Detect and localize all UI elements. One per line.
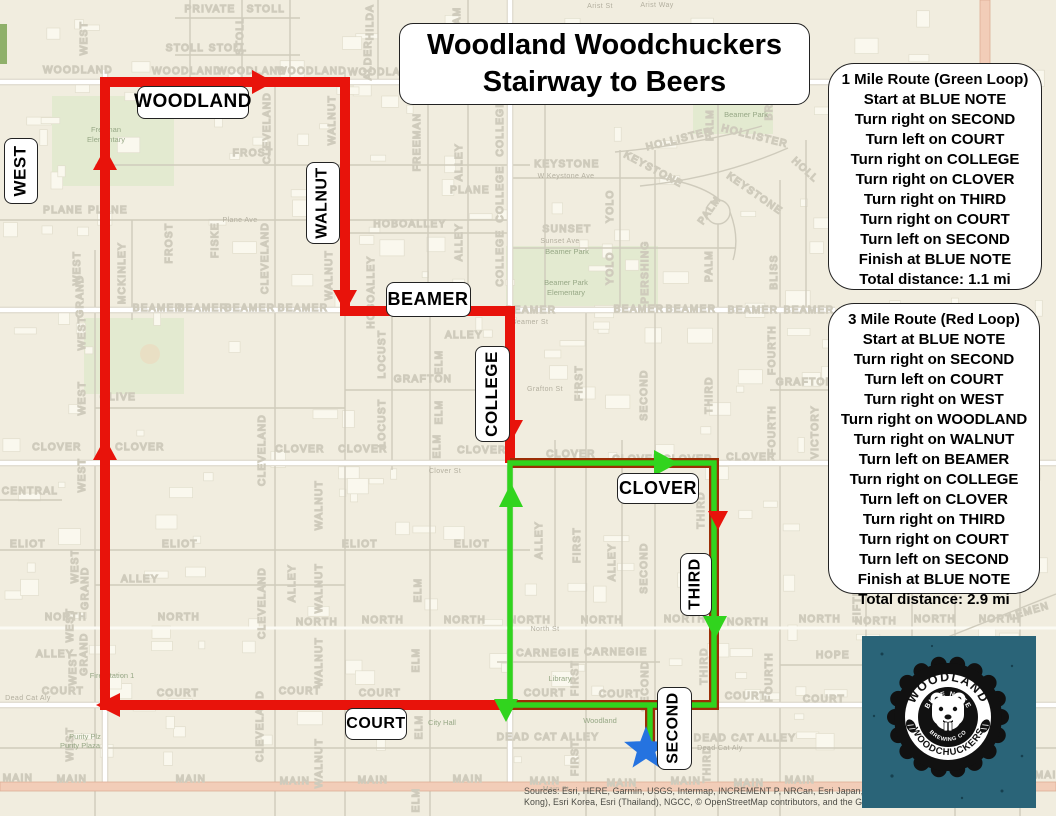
street-name-label: WOODLAND [152, 66, 222, 77]
road-name-label: North St [531, 626, 560, 633]
street-name-label: HOLL [789, 155, 820, 184]
street-name-label: MAIN [1035, 770, 1056, 781]
street-name-label: CLOVER [115, 442, 165, 453]
street-name-label: HOPE [816, 650, 850, 661]
street-name-label: BEAMER [133, 303, 184, 314]
route-total-distance: Total distance: 2.9 mi [829, 590, 1039, 610]
map-poster: PRIVATESTOLLSTOLLSTOLLSTOLLWILLIAMHILDAA… [0, 0, 1056, 816]
route-panel-title: 3 Mile Route (Red Loop) [829, 310, 1039, 330]
street-name-label: ELM [411, 648, 422, 673]
street-name-label: ELM [434, 400, 445, 425]
street-name-label: BEAMER [614, 304, 665, 315]
road-name-label: Grafton St [527, 386, 563, 393]
street-name-label: BLISS [769, 254, 780, 289]
route-step: Turn right on THIRD [829, 190, 1041, 210]
street-name-label: COURT [803, 694, 845, 705]
route-step: Turn right on COLLEGE [829, 470, 1039, 490]
street-name-label: NORTH [664, 614, 706, 625]
route-panel-title: 1 Mile Route (Green Loop) [829, 70, 1041, 90]
route-step: Turn right on WEST [829, 390, 1039, 410]
boxed-street-label-beamer: BEAMER [386, 282, 471, 317]
street-name-label: LOCUST [377, 330, 388, 379]
place-name-label: Woodland [583, 716, 617, 725]
route-step: Turn right on COURT [829, 210, 1041, 230]
street-name-label: COURT [725, 691, 767, 702]
route-step: Turn left on SECOND [829, 230, 1041, 250]
route-step: Turn right on THIRD [829, 510, 1039, 530]
street-name-label: DEAD CAT ALLEY [497, 732, 600, 743]
street-name-label: FOURTH [767, 405, 778, 455]
street-name-label: NORTH [296, 617, 338, 628]
route-step: Finish at BLUE NOTE [829, 250, 1041, 270]
road-name-label: Arist St [587, 3, 613, 10]
street-name-label: CARNEGIE [516, 648, 579, 659]
road-name-label: Clover St [429, 468, 461, 475]
route-panel-red: 3 Mile Route (Red Loop)Start at BLUE NOT… [828, 303, 1040, 594]
route-total-distance: Total distance: 1.1 mi [829, 270, 1041, 290]
street-name-label: NORTH [727, 617, 769, 628]
route-step: Start at BLUE NOTE [829, 90, 1041, 110]
street-name-label: SUNSET [543, 224, 592, 235]
street-name-label: ELIOT [162, 539, 198, 550]
street-name-label: CLOVER [726, 452, 776, 463]
street-name-label: ALLEY [287, 564, 298, 602]
boxed-street-label-second: SECOND [657, 687, 692, 770]
boxed-street-label-woodland: WOODLAND [137, 86, 249, 119]
street-name-label: ELIOT [10, 539, 46, 550]
title-box: Woodland Woodchuckers Stairway to Beers [399, 23, 810, 105]
street-name-label: THIRD [699, 647, 710, 685]
street-name-label: HOBOALLEY [373, 219, 446, 230]
place-name-label: Purity Plz [69, 732, 101, 741]
street-name-label: MCKINLEY [117, 242, 128, 304]
street-name-label: ALLEY [454, 143, 465, 181]
boxed-street-label-clover: CLOVER [617, 473, 699, 504]
street-name-label: YOLO [605, 189, 616, 222]
route-step: Turn right on SECOND [829, 350, 1039, 370]
route-step: Turn left on CLOVER [829, 490, 1039, 510]
street-name-label: PRIVATE [184, 4, 235, 15]
street-name-label: PALM [704, 250, 715, 282]
road-name-label: Sunset Ave [540, 238, 579, 245]
street-name-label: ALLEY [121, 574, 159, 585]
street-name-label: COURT [157, 688, 199, 699]
street-name-label: CARNEGIE [584, 647, 647, 658]
boxed-street-label-third: THIRD [680, 553, 712, 616]
street-name-label: NORTH [799, 614, 841, 625]
street-name-label: PLANE [43, 205, 83, 216]
street-name-label: CLOVER [32, 442, 82, 453]
street-name-label: STOLL [247, 4, 286, 15]
street-name-label: COLLEGE [495, 165, 506, 222]
place-name-label: Elementary [547, 288, 585, 297]
street-name-label: PLANE [450, 185, 490, 196]
street-name-label: MAIN [280, 776, 311, 787]
street-name-label: THIRD [704, 376, 715, 414]
street-name-label: ELIOT [454, 539, 490, 550]
street-name-label: FIRST [570, 660, 581, 696]
route-step: Turn right on CLOVER [829, 170, 1041, 190]
street-name-label: ALLEY [36, 649, 74, 660]
place-name-label: Beamer Park [724, 110, 768, 119]
woodchuckers-logo: WOODLAND WOODCHUCKERS BLUE NOTE BREWING … [862, 636, 1036, 808]
street-name-label: NORTH [158, 612, 200, 623]
street-name-label: FREEMAN [412, 113, 423, 172]
street-name-label: CLEVELAND [257, 567, 268, 639]
street-name-label: ELM [411, 788, 422, 813]
route-step: Turn left on BEAMER [829, 450, 1039, 470]
road-name-label: Dead Cat Aly [5, 695, 51, 702]
title-line-2: Stairway to Beers [400, 64, 809, 101]
green-arrow-up-college [499, 483, 523, 507]
route-step: Turn right on COLLEGE [829, 150, 1041, 170]
street-name-label: MAIN [3, 773, 34, 784]
street-name-label: CLOVER [457, 445, 507, 456]
street-name-label: COLLEGE [495, 229, 506, 286]
street-name-label: DEAD CAT ALLEY [694, 733, 797, 744]
street-name-label: WALNUT [314, 738, 325, 788]
route-step: Turn left on COURT [829, 130, 1041, 150]
street-name-label: BEAMER [225, 303, 276, 314]
place-name-label: City Hall [428, 718, 456, 727]
street-name-label: LOCUST [377, 399, 388, 448]
street-name-label: KEYSTONE [724, 171, 784, 218]
street-name-label: COLLEGE [495, 99, 506, 156]
route-arrows [93, 70, 728, 722]
street-name-label: NORTH [914, 614, 956, 625]
street-name-label: WALNUT [314, 637, 325, 687]
route-step: Turn left on SECOND [829, 550, 1039, 570]
route-step: Finish at BLUE NOTE [829, 570, 1039, 590]
street-name-label: GRAND [79, 632, 90, 675]
place-name-label: Fire Station 1 [90, 671, 135, 680]
street-name-label: NORTH [444, 615, 486, 626]
street-name-label: GRAND [80, 566, 91, 609]
street-name-label: ELM [413, 578, 424, 603]
street-name-label: PALM [705, 109, 716, 141]
street-name-label: ELM [432, 434, 443, 459]
boxed-street-label-west: WEST [4, 138, 38, 204]
place-name-label: Purity Plaza [60, 741, 101, 750]
street-name-label: SECOND [639, 369, 650, 420]
street-name-label: CENTRAL [2, 486, 58, 497]
street-name-label: STOLL [166, 43, 205, 54]
place-name-label: Beamer Park [545, 247, 589, 256]
street-name-label: CLOVER [338, 444, 388, 455]
street-name-label: SECOND [639, 542, 650, 593]
street-name-label: BEAMER [178, 303, 229, 314]
place-name-label: Library [549, 674, 572, 683]
street-name-label: WOODLAND [43, 65, 113, 76]
street-name-label: FROST [164, 223, 175, 264]
street-name-label: WEST [77, 458, 88, 493]
boxed-street-label-college: COLLEGE [475, 346, 510, 442]
route-step: Turn right on COURT [829, 530, 1039, 550]
street-name-label: PERSHING [640, 240, 651, 303]
street-name-label: ELM [434, 350, 445, 375]
route-step: Turn right on WALNUT [829, 430, 1039, 450]
street-name-label: CLEVELAND [262, 92, 273, 164]
street-name-label: GRAFTON [394, 374, 453, 385]
title-line-1: Woodland Woodchuckers [400, 27, 809, 64]
route-step: Start at BLUE NOTE [829, 330, 1039, 350]
street-name-label: ALLEY [607, 543, 618, 581]
street-name-label: WOODLAND [277, 66, 347, 77]
street-name-label: FIRST [574, 365, 585, 401]
street-name-label: WEST [77, 316, 88, 351]
red-arrow-up-west-lower [93, 438, 117, 460]
street-name-label: WEST [79, 21, 90, 56]
street-name-label: GRAFTON [776, 377, 835, 388]
street-name-label: KEYSTONE [534, 159, 599, 170]
street-name-label: FIRST [570, 740, 581, 776]
route-panel-green: 1 Mile Route (Green Loop)Start at BLUE N… [828, 63, 1042, 290]
green-arrow-down-college-court [494, 699, 518, 722]
street-name-label: ELM [414, 715, 425, 740]
street-name-label: CLEVELAND [257, 414, 268, 486]
street-name-label: FOURTH [764, 652, 775, 702]
street-name-label: MAIN [785, 775, 816, 786]
street-name-label: BEAMER [278, 303, 329, 314]
road-name-label: Arist Way [640, 2, 673, 9]
route-step: Turn right on SECOND [829, 110, 1041, 130]
street-name-label: HILDA [365, 4, 376, 40]
street-name-label: ALLEY [534, 521, 545, 559]
street-name-label: NORTH [509, 615, 551, 626]
road-name-label: Dead Cat Aly [697, 745, 743, 752]
street-name-label: COURT [599, 689, 641, 700]
street-name-label: WEST [77, 381, 88, 416]
street-name-label: WALNUT [314, 563, 325, 613]
street-name-label: NORTH [362, 615, 404, 626]
street-name-label: WALNUT [327, 95, 338, 145]
street-name-label: MAIN [57, 774, 88, 785]
street-name-label: STOLL [235, 17, 246, 56]
street-name-label: NORTH [45, 612, 87, 623]
street-name-label: ALLEY [454, 223, 465, 261]
street-name-label: BEAMER [784, 305, 835, 316]
street-name-label: VICTORY [810, 405, 821, 459]
street-name-label: COURT [524, 688, 566, 699]
street-name-label: ALLEY [445, 330, 483, 341]
street-name-label: FOURTH [767, 325, 778, 375]
road-name-label: Plane Ave [223, 217, 258, 224]
street-name-label: MAIN [176, 774, 207, 785]
street-name-label: ELIOT [342, 539, 378, 550]
street-name-label: CLEVELAND [260, 222, 271, 294]
street-name-label: WALNUT [314, 480, 325, 530]
street-name-label: WALNUT [324, 250, 335, 300]
road-name-label: Beamer St [512, 319, 549, 326]
street-name-label: BEAMER [666, 304, 717, 315]
street-name-label: HOBOALLEY [366, 255, 377, 328]
street-name-label: COURT [359, 688, 401, 699]
street-name-label: CLOVER [275, 444, 325, 455]
street-name-label: MAIN [453, 774, 484, 785]
route-step: Turn right on WOODLAND [829, 410, 1039, 430]
route-step: Turn left on COURT [829, 370, 1039, 390]
road-name-label: W Keystone Ave [538, 173, 595, 180]
boxed-street-label-court: COURT [345, 708, 407, 740]
place-name-label: Beamer Park [544, 278, 588, 287]
street-name-label: FIRST [572, 527, 583, 563]
street-name-label: YOLO [605, 251, 616, 284]
street-name-label: BEAMER [728, 305, 779, 316]
street-name-label: WEST [72, 251, 83, 286]
street-name-label: NORTH [581, 615, 623, 626]
street-name-label: FISKE [210, 222, 221, 258]
boxed-street-label-walnut: WALNUT [306, 162, 340, 244]
street-name-label: COURT [279, 686, 321, 697]
street-name-label: MAIN [358, 775, 389, 786]
